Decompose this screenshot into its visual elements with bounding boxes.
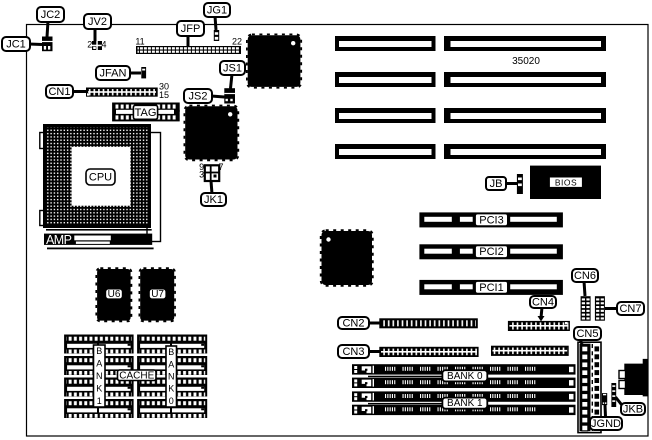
- svg-text:JGND: JGND: [591, 418, 621, 430]
- svg-text:2: 2: [87, 40, 92, 50]
- svg-text:JS1: JS1: [223, 63, 242, 75]
- svg-text:BANK 0: BANK 0: [447, 371, 483, 382]
- svg-text:U7: U7: [151, 289, 164, 300]
- svg-text:U6: U6: [108, 289, 121, 300]
- svg-text:K: K: [168, 384, 174, 394]
- svg-text:7: 7: [218, 162, 223, 172]
- svg-text:CN3: CN3: [342, 346, 364, 358]
- svg-text:JC2: JC2: [41, 9, 61, 21]
- svg-text:CN4: CN4: [532, 297, 554, 309]
- svg-text:35020: 35020: [512, 56, 540, 67]
- svg-text:4: 4: [101, 40, 106, 50]
- svg-text:A: A: [96, 359, 102, 369]
- svg-text:B: B: [168, 347, 174, 357]
- svg-text:JFAN: JFAN: [100, 68, 127, 80]
- svg-text:K: K: [96, 383, 102, 393]
- svg-text:N: N: [168, 372, 175, 382]
- svg-text:B: B: [96, 346, 102, 356]
- svg-text:AMP: AMP: [46, 233, 72, 247]
- svg-text:TAG: TAG: [135, 107, 157, 119]
- svg-text:15: 15: [159, 90, 169, 100]
- svg-text:3: 3: [199, 170, 204, 180]
- svg-text:JKB: JKB: [623, 404, 643, 416]
- svg-text:PCI3: PCI3: [479, 214, 503, 226]
- svg-text:22: 22: [232, 37, 242, 47]
- svg-text:CN5: CN5: [576, 328, 598, 340]
- svg-text:BIOS: BIOS: [555, 178, 577, 188]
- svg-text:PCI2: PCI2: [479, 246, 503, 258]
- svg-text:A: A: [168, 359, 174, 369]
- svg-text:PCI1: PCI1: [479, 282, 503, 294]
- svg-text:JB: JB: [490, 178, 503, 190]
- svg-text:JV2: JV2: [88, 16, 107, 28]
- svg-text:CN7: CN7: [619, 303, 641, 315]
- svg-text:CACHE: CACHE: [119, 370, 154, 381]
- svg-text:JC1: JC1: [6, 39, 26, 51]
- svg-text:CN2: CN2: [342, 318, 364, 330]
- svg-text:CN6: CN6: [574, 270, 596, 282]
- svg-text:JFP: JFP: [181, 23, 201, 35]
- svg-text:CN1: CN1: [48, 86, 70, 98]
- svg-text:N: N: [96, 371, 103, 381]
- svg-text:BANK 1: BANK 1: [447, 398, 483, 409]
- svg-text:1: 1: [97, 396, 102, 406]
- svg-text:CPU: CPU: [89, 172, 112, 184]
- svg-text:11: 11: [135, 37, 144, 47]
- svg-text:JK1: JK1: [204, 194, 223, 206]
- svg-text:JG1: JG1: [207, 5, 227, 17]
- svg-text:JS2: JS2: [189, 91, 208, 103]
- svg-text:0: 0: [169, 396, 174, 406]
